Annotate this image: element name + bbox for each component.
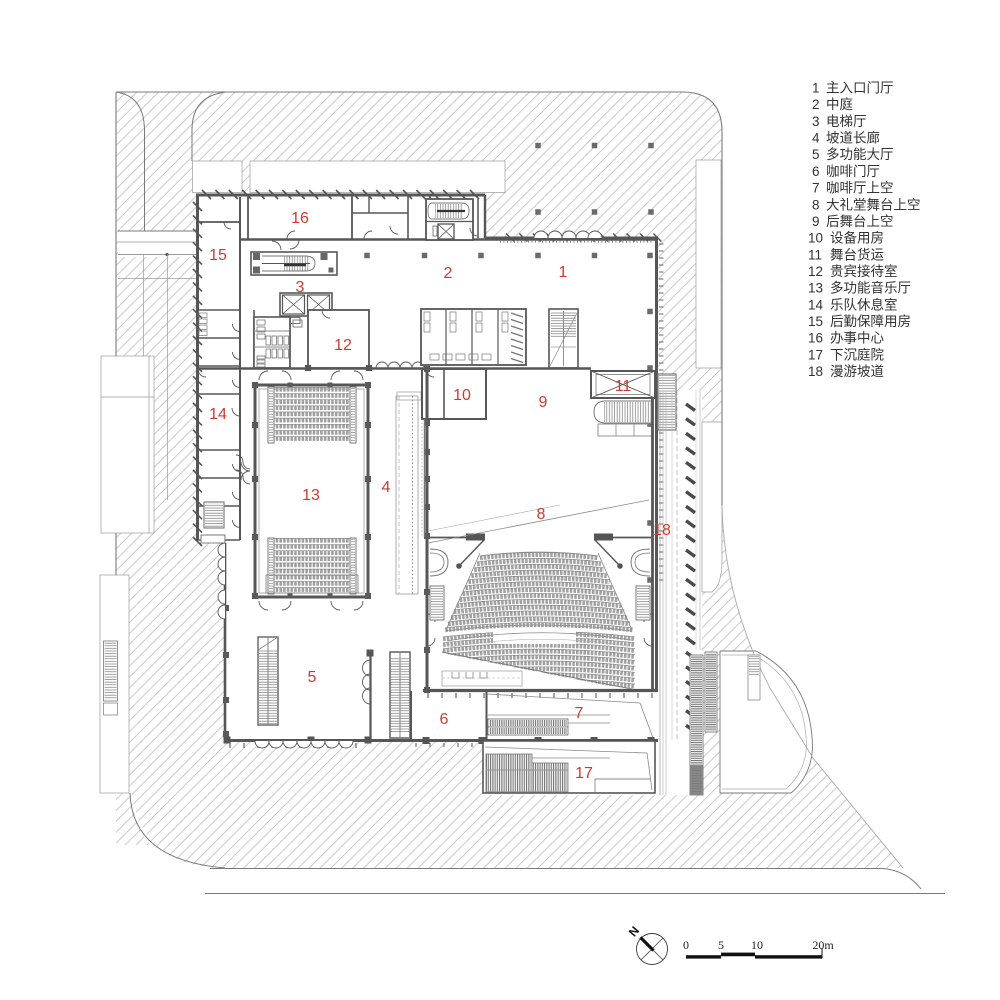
svg-text:6: 6 <box>812 164 820 179</box>
svg-text:设备用房: 设备用房 <box>830 230 884 246</box>
svg-text:坡道长廊: 坡道长廊 <box>826 130 880 146</box>
svg-text:后舞台上空: 后舞台上空 <box>826 214 894 229</box>
svg-text:12: 12 <box>808 264 823 279</box>
svg-text:13: 13 <box>302 487 320 504</box>
svg-text:10: 10 <box>808 231 823 246</box>
svg-text:18: 18 <box>808 364 823 379</box>
svg-text:乐队休息室: 乐队休息室 <box>830 296 898 312</box>
svg-text:6: 6 <box>440 711 449 728</box>
svg-text:9: 9 <box>812 214 820 229</box>
svg-text:2: 2 <box>444 265 453 282</box>
svg-text:舞台货运: 舞台货运 <box>830 246 884 262</box>
svg-text:1: 1 <box>812 81 820 96</box>
svg-text:7: 7 <box>812 181 820 196</box>
svg-text:4: 4 <box>812 131 820 146</box>
svg-text:下沉庭院: 下沉庭院 <box>830 346 884 362</box>
svg-text:咖啡厅上空: 咖啡厅上空 <box>826 181 894 196</box>
svg-text:7: 7 <box>575 705 584 722</box>
svg-text:9: 9 <box>539 394 548 411</box>
svg-text:15: 15 <box>209 247 227 264</box>
svg-text:17: 17 <box>808 347 823 362</box>
svg-text:漫游坡道: 漫游坡道 <box>830 364 884 379</box>
svg-text:11: 11 <box>615 378 632 395</box>
svg-text:14: 14 <box>209 406 227 423</box>
svg-text:5: 5 <box>308 669 317 686</box>
svg-text:后勤保障用房: 后勤保障用房 <box>830 314 911 329</box>
svg-text:17: 17 <box>575 765 593 782</box>
svg-text:5: 5 <box>718 938 724 952</box>
svg-text:多功能大厅: 多功能大厅 <box>826 146 894 162</box>
svg-text:主入口门厅: 主入口门厅 <box>826 81 894 96</box>
svg-text:16: 16 <box>808 331 823 346</box>
svg-text:20m: 20m <box>812 938 834 952</box>
svg-text:8: 8 <box>812 197 820 212</box>
svg-text:1: 1 <box>559 264 568 281</box>
svg-text:13: 13 <box>808 281 823 296</box>
svg-text:5: 5 <box>812 147 820 162</box>
svg-text:10: 10 <box>453 387 471 404</box>
svg-text:电梯厅: 电梯厅 <box>826 114 867 129</box>
svg-text:14: 14 <box>808 297 824 312</box>
svg-text:多功能音乐厅: 多功能音乐厅 <box>830 280 911 296</box>
svg-text:中庭: 中庭 <box>826 96 854 112</box>
svg-text:8: 8 <box>537 506 546 523</box>
svg-text:4: 4 <box>382 479 391 496</box>
svg-text:办事中心: 办事中心 <box>830 331 884 346</box>
svg-text:大礼堂舞台上空: 大礼堂舞台上空 <box>826 197 921 212</box>
svg-text:10: 10 <box>751 938 763 952</box>
svg-text:18: 18 <box>653 522 671 539</box>
svg-text:2: 2 <box>812 97 820 112</box>
svg-text:贵宾接待室: 贵宾接待室 <box>830 263 898 279</box>
svg-text:咖啡门厅: 咖啡门厅 <box>826 164 880 179</box>
svg-text:15: 15 <box>808 314 823 329</box>
svg-text:3: 3 <box>812 114 820 129</box>
svg-text:11: 11 <box>808 247 822 262</box>
svg-text:0: 0 <box>683 938 689 952</box>
svg-text:16: 16 <box>291 210 309 227</box>
svg-text:12: 12 <box>334 337 352 354</box>
